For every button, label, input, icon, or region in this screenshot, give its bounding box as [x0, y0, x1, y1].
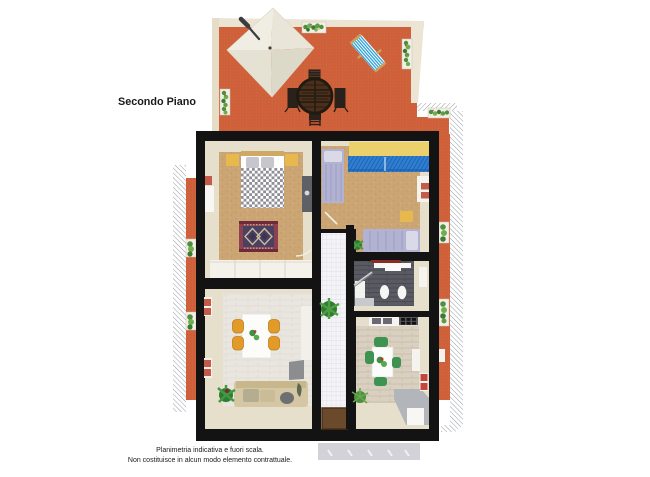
svg-text:Planimetria indicativa e fuori: Planimetria indicativa e fuori scala.	[156, 447, 264, 454]
svg-text:Secondo Piano: Secondo Piano	[118, 96, 196, 108]
svg-text:Non costituisce in alcun modo: Non costituisce in alcun modo elemento c…	[128, 457, 292, 464]
